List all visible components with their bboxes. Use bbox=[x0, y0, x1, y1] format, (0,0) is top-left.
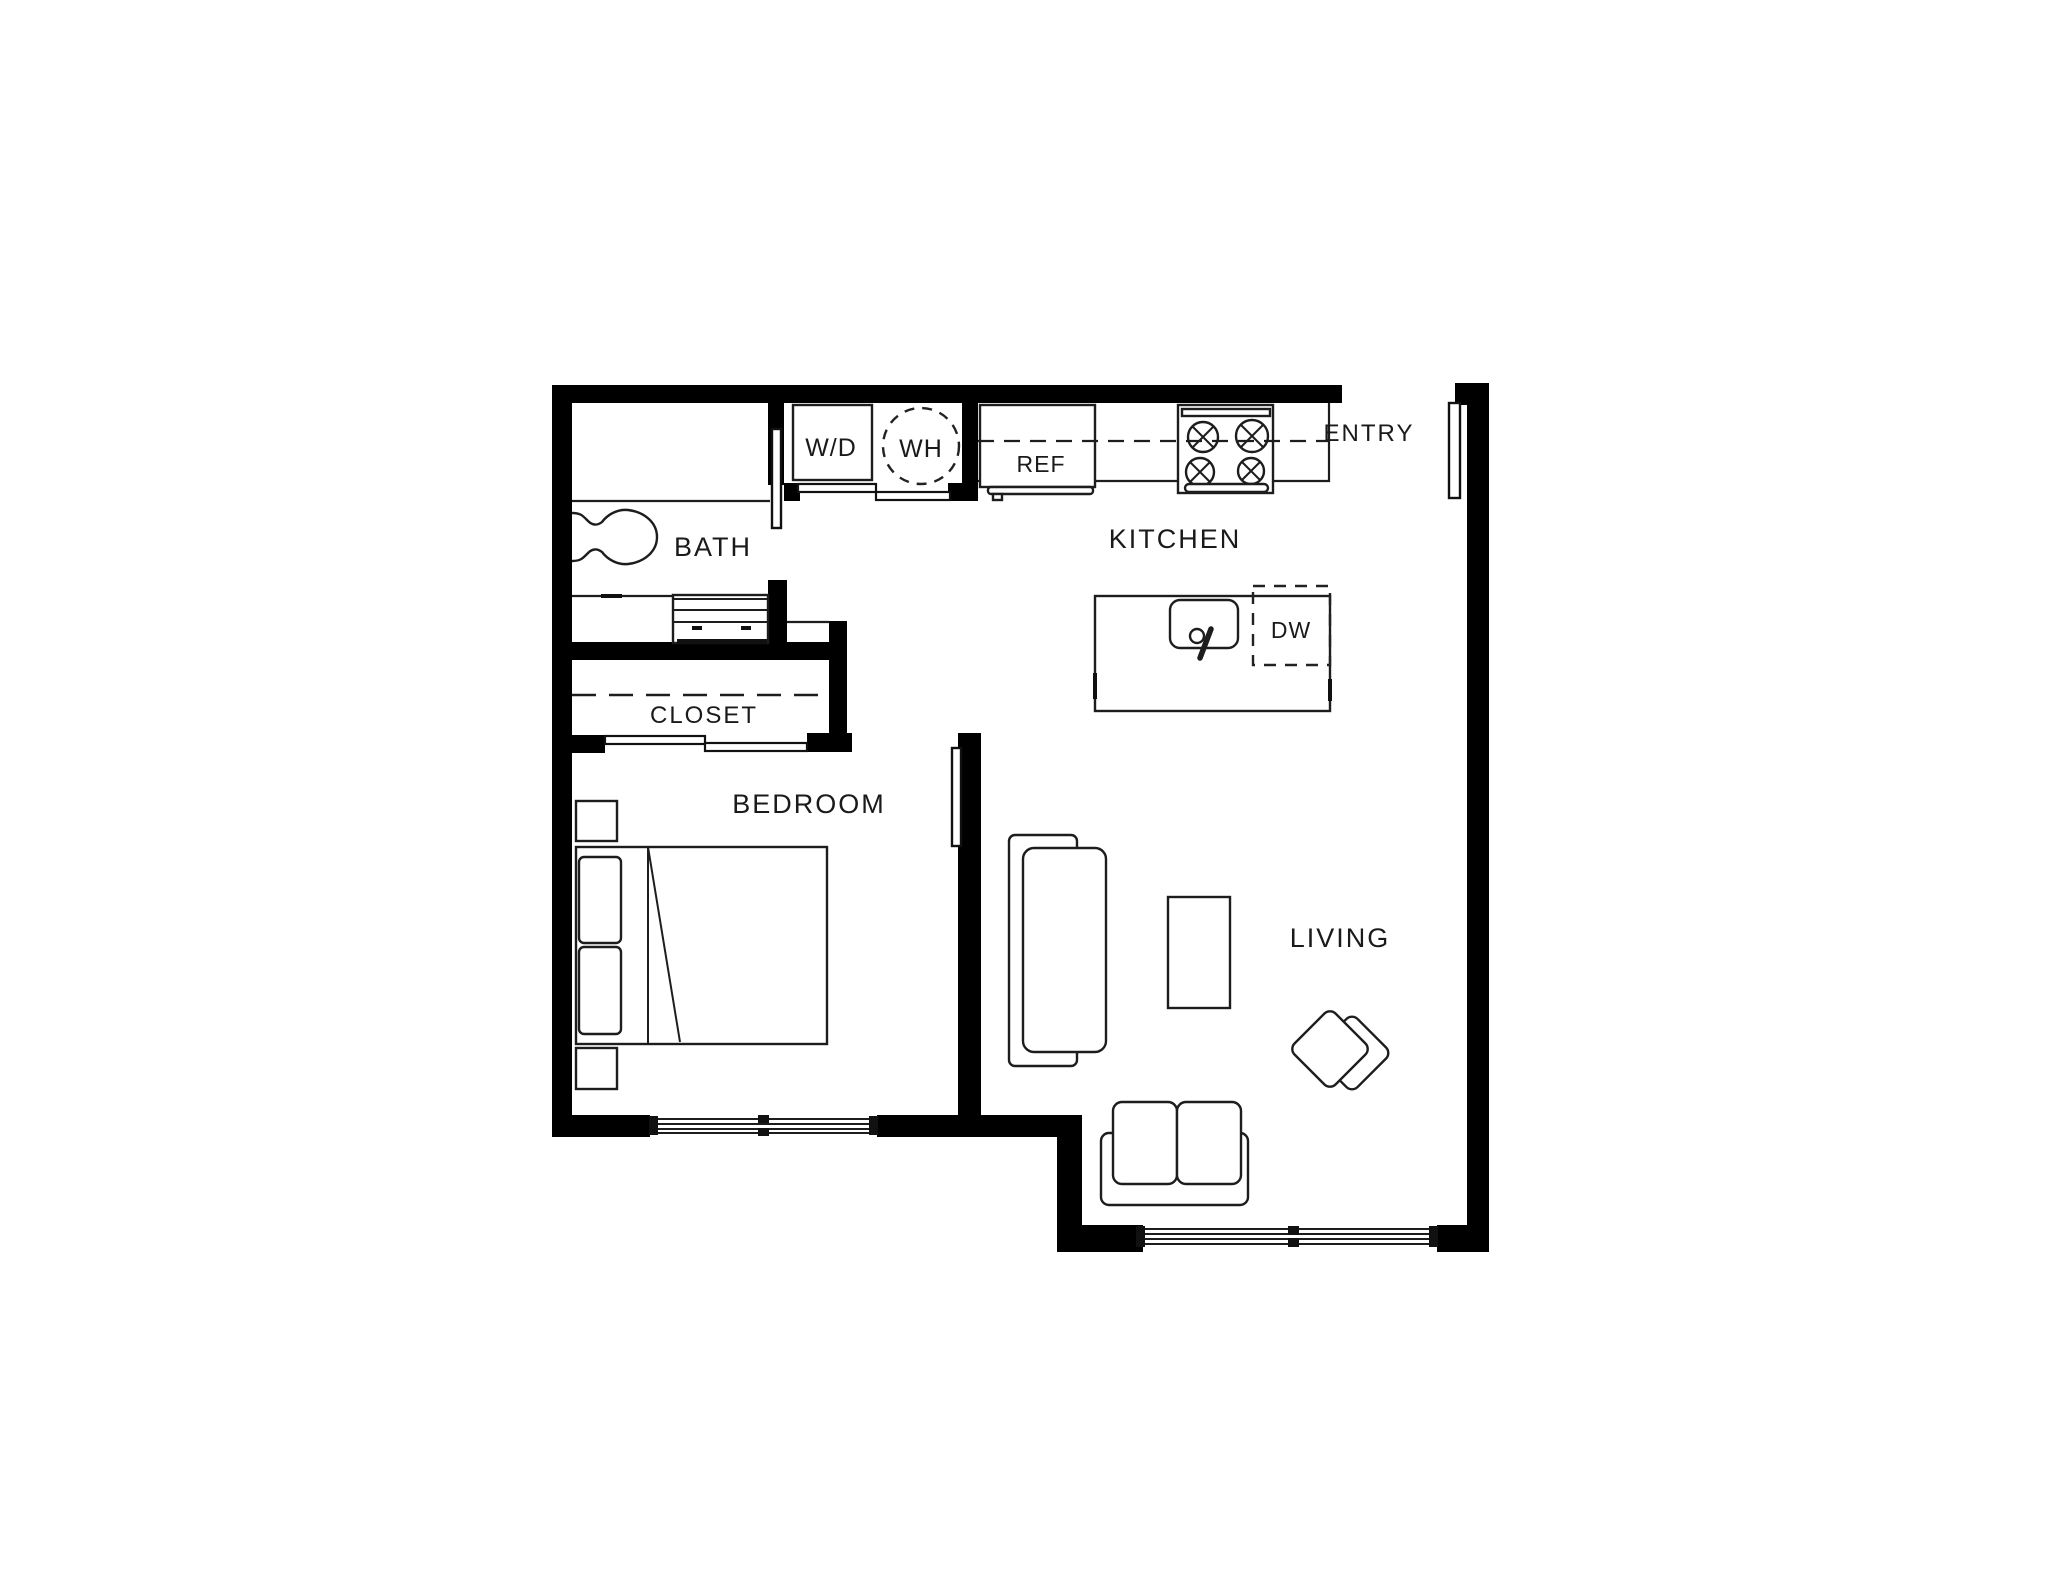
label-closet: CLOSET bbox=[650, 702, 758, 729]
label-entry: ENTRY bbox=[1324, 420, 1415, 447]
nightstand-bottom bbox=[576, 1048, 617, 1089]
stove-control-bar bbox=[1182, 409, 1270, 416]
wall-bedroom-bottom-right bbox=[877, 1115, 1082, 1137]
closet-sliding-door-left bbox=[605, 736, 705, 744]
vanity-cabinet bbox=[673, 595, 768, 643]
toilet bbox=[572, 510, 657, 564]
wall-bottom-right-corner bbox=[1437, 1225, 1489, 1252]
window-end-cap bbox=[869, 1116, 878, 1135]
wd-sliding-door-right bbox=[876, 492, 950, 500]
window-end-cap bbox=[1136, 1226, 1145, 1247]
pillow bbox=[579, 857, 621, 943]
wall-closet-right bbox=[829, 621, 847, 733]
island-edge-tick-right bbox=[1328, 679, 1332, 701]
label-water-heater: WH bbox=[899, 435, 943, 463]
label-refrigerator: REF bbox=[1017, 451, 1066, 477]
loveseat-cushion bbox=[1113, 1102, 1177, 1184]
bath-door bbox=[772, 429, 781, 528]
label-living: LIVING bbox=[1290, 923, 1391, 953]
refrigerator-foot bbox=[993, 494, 1002, 500]
island-edge-tick-left bbox=[1093, 673, 1097, 699]
refrigerator-door-bar bbox=[988, 487, 1093, 494]
kitchen-island bbox=[1093, 586, 1332, 711]
window-mullion bbox=[1288, 1226, 1299, 1235]
vanity-handle bbox=[741, 626, 751, 630]
window-end-cap bbox=[649, 1116, 658, 1135]
wall-step bbox=[1057, 1137, 1082, 1252]
bedroom-furniture bbox=[576, 801, 827, 1089]
wall-bedroom-bottom-left bbox=[552, 1115, 650, 1137]
floor-plan-page: BATH CLOSET BEDROOM KITCHEN LIVING ENTRY… bbox=[0, 0, 2048, 1583]
wall-wh-corner-right bbox=[948, 483, 978, 501]
window-mullion bbox=[758, 1128, 769, 1136]
wd-sliding-door-left bbox=[798, 484, 876, 492]
living-window bbox=[1136, 1226, 1438, 1247]
wall-living-bottom bbox=[1082, 1225, 1143, 1252]
label-washer-dryer: W/D bbox=[805, 434, 857, 462]
wall-closet-top bbox=[552, 642, 830, 660]
vanity-base-bar bbox=[677, 639, 767, 644]
label-bedroom: BEDROOM bbox=[732, 789, 886, 819]
sink-faucet-base bbox=[1190, 629, 1204, 643]
bedroom-door bbox=[952, 748, 961, 846]
loveseat-cushion bbox=[1177, 1102, 1241, 1184]
coffee-table bbox=[1168, 897, 1230, 1008]
window-end-cap bbox=[1429, 1226, 1438, 1247]
wall-left bbox=[552, 385, 572, 1137]
entry-door bbox=[1449, 403, 1460, 498]
closet-sliding-door-right bbox=[705, 743, 807, 751]
bath-fixtures bbox=[572, 501, 829, 644]
bed-sheet-fold bbox=[648, 847, 680, 1042]
window-mullion bbox=[758, 1115, 769, 1123]
label-dishwasher: DW bbox=[1271, 617, 1311, 643]
vanity-handle bbox=[692, 626, 702, 630]
wall-top bbox=[552, 385, 1342, 403]
bed bbox=[576, 847, 827, 1044]
floor-plan-drawing: BATH CLOSET BEDROOM KITCHEN LIVING ENTRY… bbox=[0, 0, 2048, 1583]
bedroom-window bbox=[649, 1115, 878, 1136]
wall-closet-jamb-left bbox=[572, 735, 605, 753]
sofa-seat-cushion bbox=[1023, 848, 1106, 1052]
island-counter bbox=[1095, 596, 1330, 711]
label-bath: BATH bbox=[674, 532, 752, 562]
wall-right-top-block bbox=[1455, 383, 1489, 405]
nightstand-top bbox=[576, 801, 617, 841]
wall-right bbox=[1467, 405, 1489, 1252]
wall-closet-jamb-right bbox=[807, 733, 852, 752]
label-kitchen: KITCHEN bbox=[1109, 524, 1242, 554]
vanity-counter-dash bbox=[601, 594, 622, 598]
stove-oven-bar bbox=[1185, 484, 1268, 492]
window-mullion bbox=[1288, 1238, 1299, 1247]
pillow bbox=[579, 947, 621, 1034]
walls bbox=[552, 383, 1489, 1252]
wall-wh-right bbox=[962, 402, 978, 485]
